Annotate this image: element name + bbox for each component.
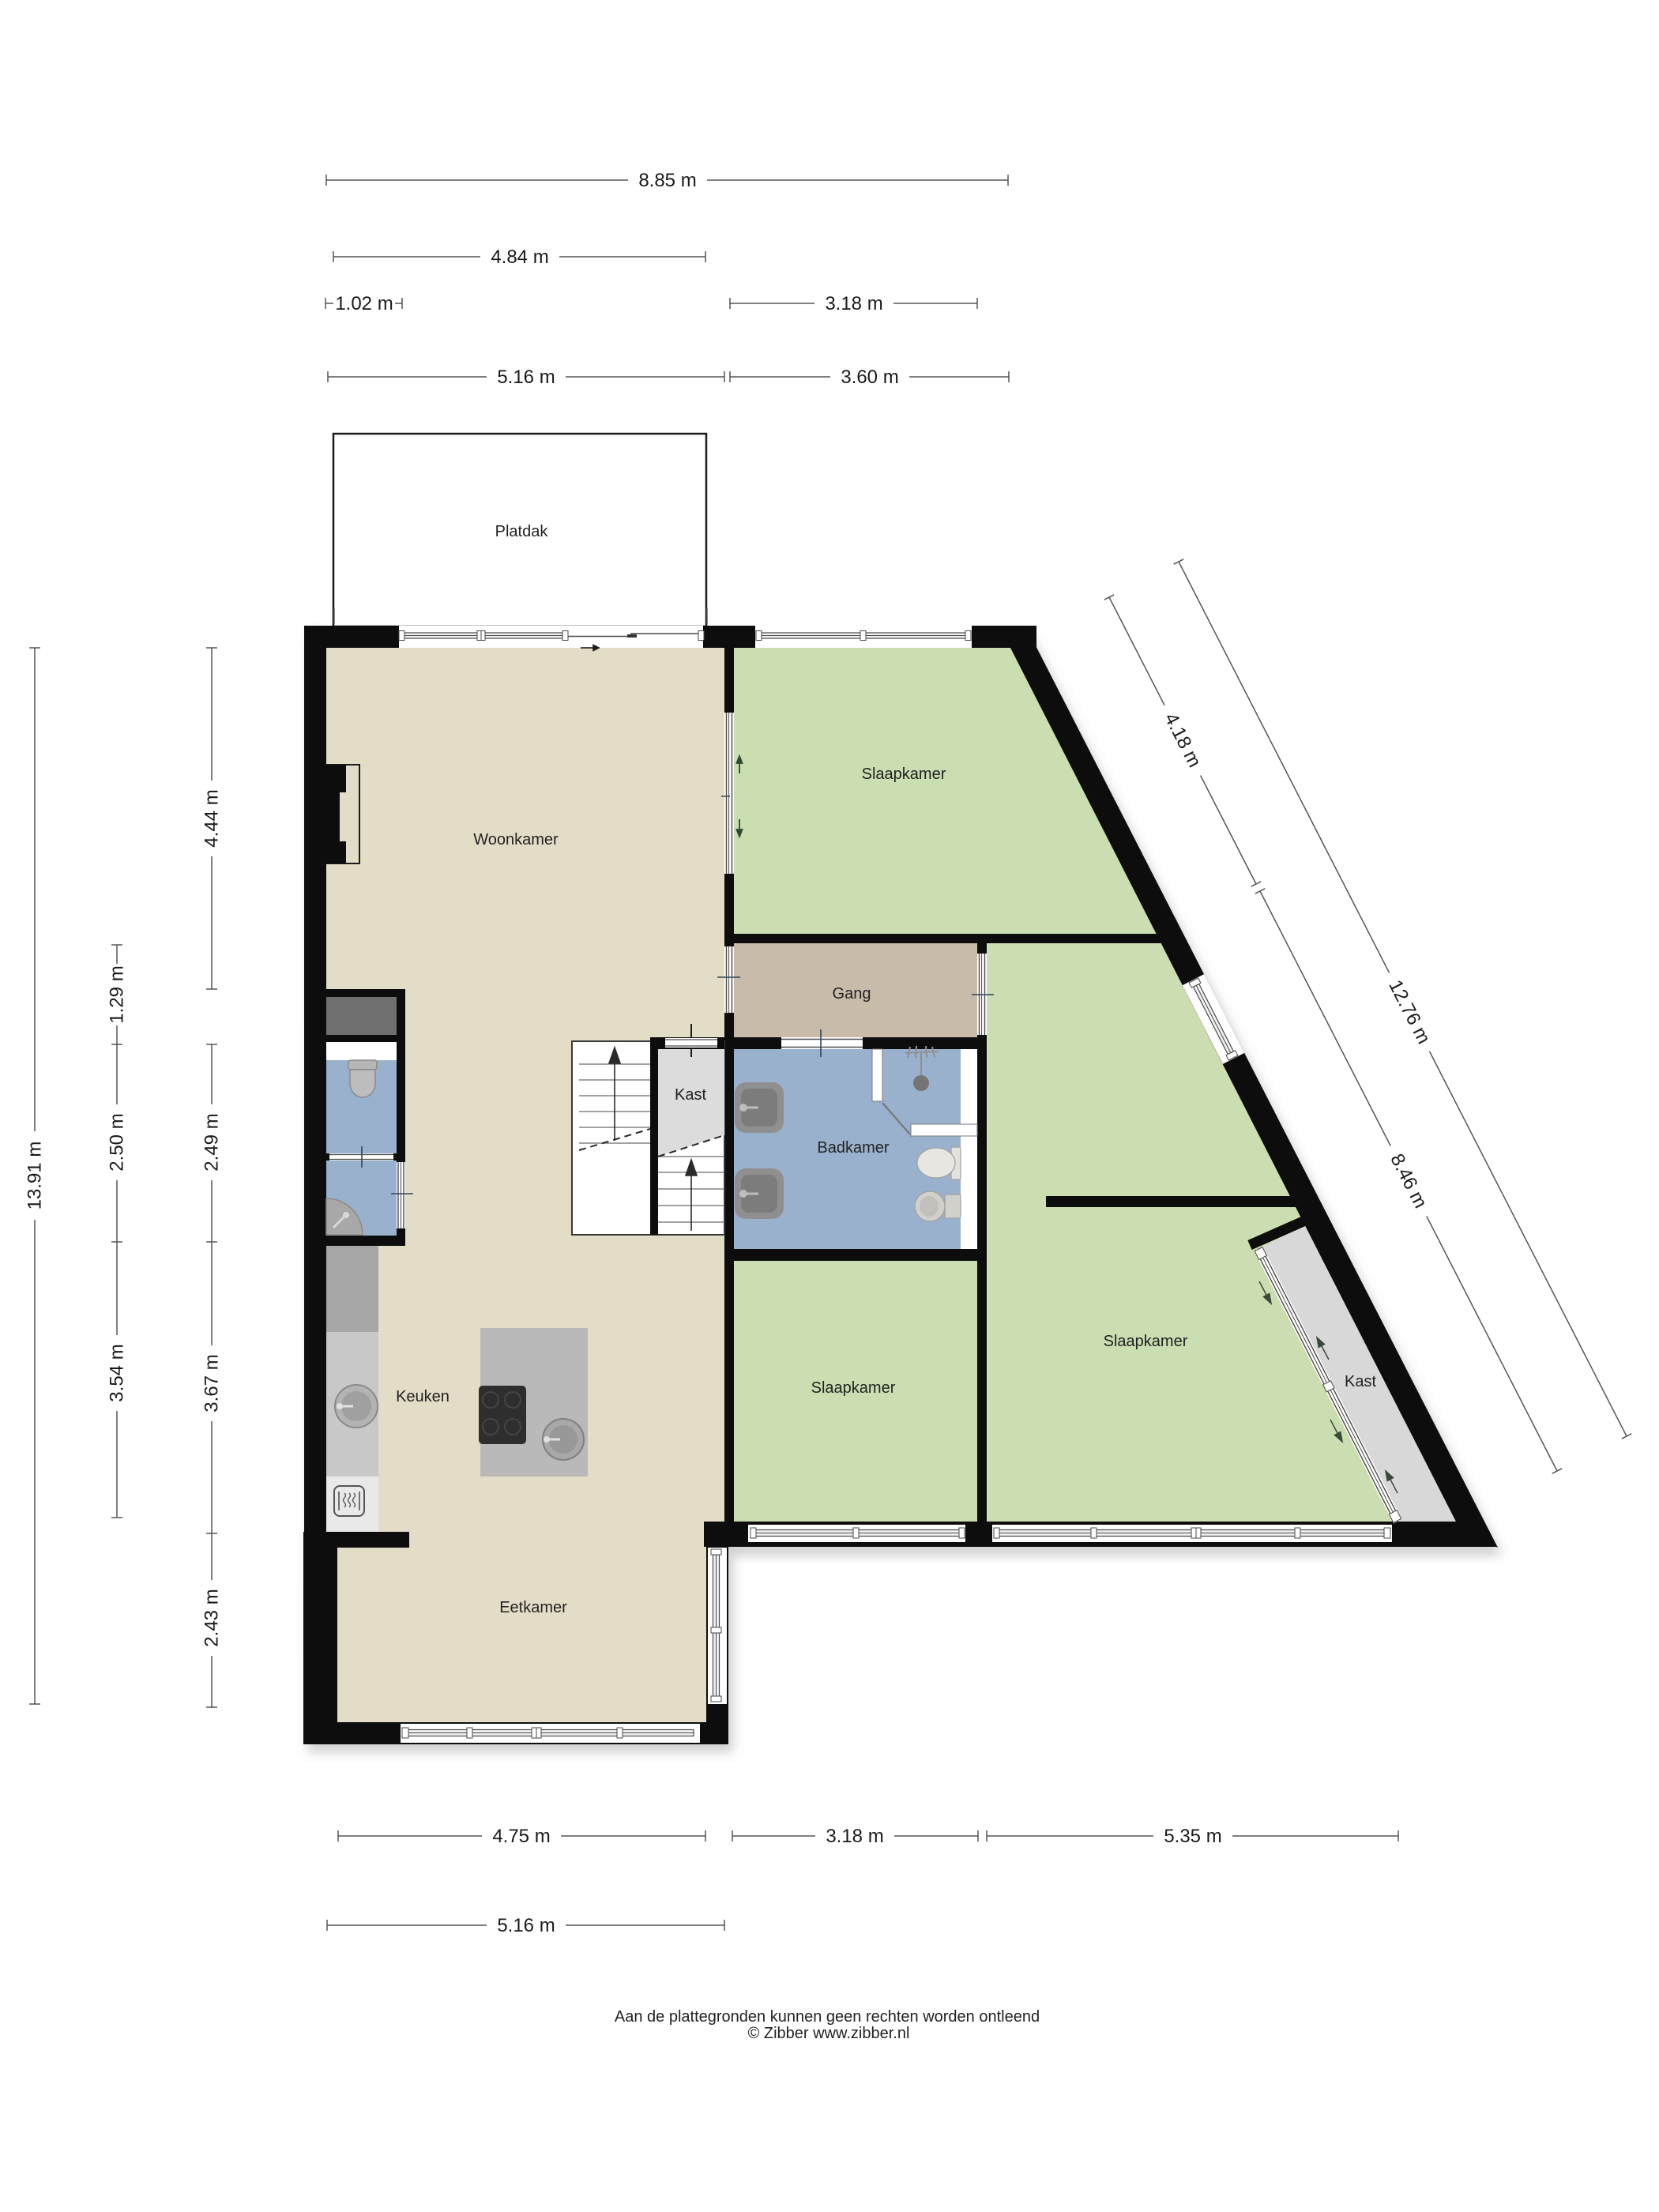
svg-text:Slaapkamer: Slaapkamer [862,766,946,783]
svg-text:Kast: Kast [675,1086,706,1104]
svg-text:Keuken: Keuken [396,1388,450,1405]
svg-text:Slaapkamer: Slaapkamer [1104,1333,1188,1350]
svg-text:Slaapkamer: Slaapkamer [811,1379,896,1397]
svg-text:Gang: Gang [833,985,871,1003]
svg-text:4.75 m: 4.75 m [492,1826,550,1847]
svg-text:4.44 m: 4.44 m [201,789,223,847]
svg-text:Badkamer: Badkamer [817,1139,889,1157]
svg-text:5.35 m: 5.35 m [1164,1826,1221,1847]
svg-text:Aan de plattegronden kunnen ge: Aan de plattegronden kunnen geen rechten… [615,2008,1040,2026]
svg-text:5.16 m: 5.16 m [497,367,555,388]
svg-text:5.16 m: 5.16 m [497,1915,555,1936]
svg-text:Platdak: Platdak [495,523,549,540]
svg-text:2.50 m: 2.50 m [107,1113,128,1171]
svg-text:2.49 m: 2.49 m [201,1113,223,1171]
svg-text:3.18 m: 3.18 m [825,293,882,314]
svg-text:3.60 m: 3.60 m [841,367,898,388]
svg-text:2.43 m: 2.43 m [201,1589,223,1646]
svg-text:3.18 m: 3.18 m [826,1826,883,1847]
svg-text:1.02 m: 1.02 m [335,293,393,314]
svg-text:1.29 m: 1.29 m [107,965,128,1023]
svg-text:Woonkamer: Woonkamer [473,831,559,848]
svg-text:8.85 m: 8.85 m [638,170,696,191]
svg-text:Eetkamer: Eetkamer [499,1599,567,1616]
svg-text:3.54 m: 3.54 m [107,1344,128,1401]
svg-text:13.91 m: 13.91 m [24,1142,46,1210]
svg-text:Kast: Kast [1345,1373,1376,1390]
svg-text:4.84 m: 4.84 m [491,246,548,268]
svg-text:© Zibber www.zibber.nl: © Zibber www.zibber.nl [748,2025,910,2042]
svg-text:3.67 m: 3.67 m [201,1354,223,1412]
